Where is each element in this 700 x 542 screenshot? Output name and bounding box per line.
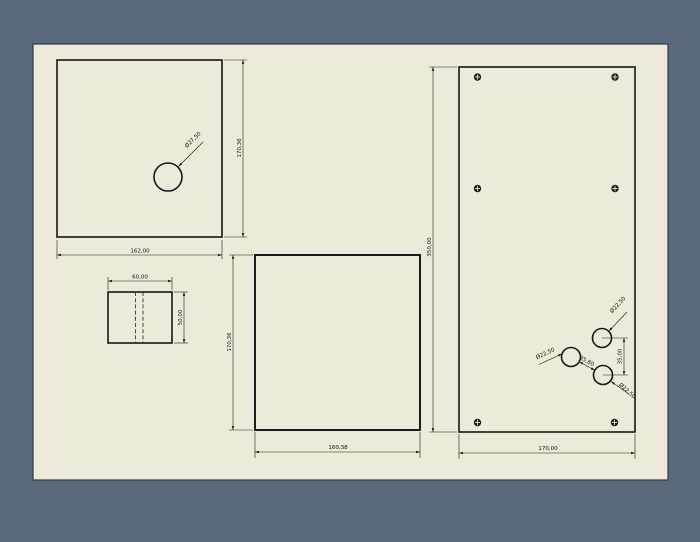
panel-edge-height-label[interactable]: 50,00 — [178, 309, 184, 325]
front-panel-width-label[interactable]: 170,00 — [538, 446, 558, 452]
cad-viewport: Ø27,50 170,36 162,00 60,00 50,00 17 — [0, 0, 700, 542]
screw-head-icon[interactable] — [474, 185, 481, 192]
front-panel-height-label[interactable]: 350,00 — [427, 237, 433, 257]
side-panel-width-label[interactable]: 162,00 — [130, 249, 150, 255]
screw-head-icon[interactable] — [611, 73, 618, 80]
side-panel-height-label[interactable]: 170,36 — [237, 138, 243, 158]
panel-edge-width-label[interactable]: 60,00 — [132, 275, 148, 281]
screw-head-icon[interactable] — [474, 419, 481, 426]
drawing-canvas: Ø27,50 170,36 162,00 60,00 50,00 17 — [0, 0, 700, 542]
back-panel-width-label[interactable]: 160,38 — [328, 445, 348, 451]
screw-head-icon[interactable] — [611, 185, 618, 192]
screw-head-icon[interactable] — [474, 73, 481, 80]
back-panel-height-label[interactable]: 170,36 — [227, 332, 233, 352]
hole-vertical-spacing-label[interactable]: 35,00 — [618, 348, 624, 364]
screw-head-icon[interactable] — [611, 419, 618, 426]
drawing-sheet — [33, 44, 668, 480]
